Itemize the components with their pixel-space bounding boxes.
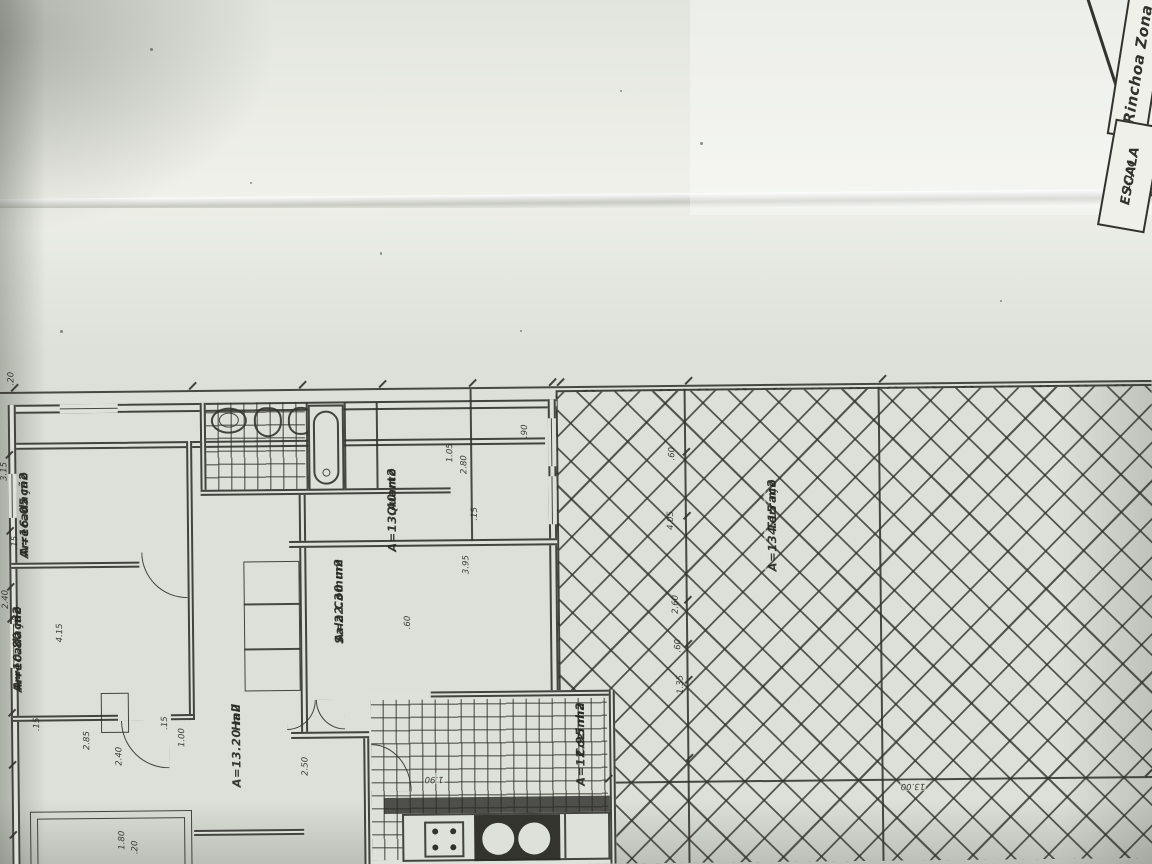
stove-burner: [450, 828, 456, 834]
dimension-label: 1.00: [178, 728, 187, 747]
room-label-cozinha: Cozinha A=12.95 m2: [573, 702, 574, 786]
zone-name-label: Rinchoa Zona: [1120, 3, 1152, 125]
dimension-label: .15: [33, 718, 42, 732]
room-label-hall: Hall A=13.20 m2: [229, 704, 230, 796]
dimension-label: .15: [11, 536, 20, 550]
dimension-label: 2.40: [115, 747, 124, 766]
room-area: A=22.30 m2: [331, 558, 346, 642]
dimension-tick: [468, 379, 476, 387]
dimension-tick: [298, 381, 306, 389]
dimension-label: .15: [161, 716, 170, 730]
dimension-tick: [378, 380, 386, 388]
dimension-label: 3.15: [0, 462, 9, 481]
storage-inner-outline-inner: [37, 817, 186, 864]
room-area: A=134.15 m2: [765, 479, 780, 572]
dimension-label: 2.40: [2, 590, 11, 609]
dimension-tick: [548, 378, 556, 386]
photographed-floor-plan-sheet: Arrecadação A=16.05 m2 Arrecadação A=10.…: [0, 0, 1152, 864]
terrace-hatch: [556, 384, 1152, 864]
wall-hall-bottom: [194, 829, 304, 836]
dimension-label: 1.80: [118, 831, 127, 850]
wall-storage-divider-b: [171, 714, 193, 720]
stove-burner: [450, 844, 456, 850]
room-label-sala-comum: Sala Comum A=22.30 m2: [331, 559, 332, 645]
wall-quarto-sala: [289, 538, 557, 548]
dimension-label: .60: [668, 447, 677, 461]
dimension-label: .60: [674, 639, 683, 653]
dimension-label: 1.35: [677, 675, 686, 694]
corridor-wardrobe: [243, 561, 300, 692]
dimension-label: 2.80: [460, 455, 469, 474]
floor-plan: Arrecadação A=16.05 m2 Arrecadação A=10.…: [0, 0, 1152, 864]
stove-burner: [432, 844, 438, 850]
dimension-label: 4.15: [56, 623, 65, 642]
door-arc-storage-top: [141, 552, 187, 598]
dimension-tick: [684, 376, 692, 384]
wall-sala-bottom: [291, 731, 371, 739]
stove-burner: [432, 828, 438, 834]
dimension-label: 4.05: [667, 511, 676, 530]
dimension-tick: [556, 378, 564, 386]
bathtub-drain: [322, 469, 330, 477]
door-arc-sala-right-leaf: [316, 699, 345, 729]
dimension-tick: [188, 382, 196, 390]
room-label-terraco: Terraço A=134.15 m2: [763, 478, 766, 570]
dimension-label: .60: [404, 616, 413, 630]
dimension-label: 2.85: [83, 731, 92, 750]
stove: [424, 821, 464, 857]
door-arc-sala-left-leaf: [287, 700, 316, 730]
dimension-label: 1.05: [446, 443, 455, 462]
wall-arrecadacao-divider: [11, 562, 139, 569]
dimension-label: .15: [471, 507, 480, 521]
room-area: A=13.40 m2: [384, 468, 399, 552]
dimension-label: 13.00: [900, 780, 926, 791]
dimension-label: 3.95: [462, 555, 471, 574]
dimension-label: 1.90: [424, 773, 445, 784]
kitchen-sink-bowl: [518, 822, 550, 854]
room-label-quarto: Quarto A=13.40 m2: [384, 468, 385, 544]
dimension-label: .20: [7, 372, 16, 386]
dimension-label: .20: [131, 841, 140, 855]
dimension-label: .90: [521, 424, 530, 438]
dimension-label: 2.50: [301, 757, 310, 776]
room-area: A=13.20 m2: [229, 704, 244, 788]
dimension-label: 2.60: [672, 595, 681, 614]
dimension-tick: [878, 374, 886, 382]
kitchen-sink-bowl: [482, 823, 514, 855]
room-area: A=12.95 m2: [573, 702, 588, 786]
toilet: [254, 407, 282, 437]
